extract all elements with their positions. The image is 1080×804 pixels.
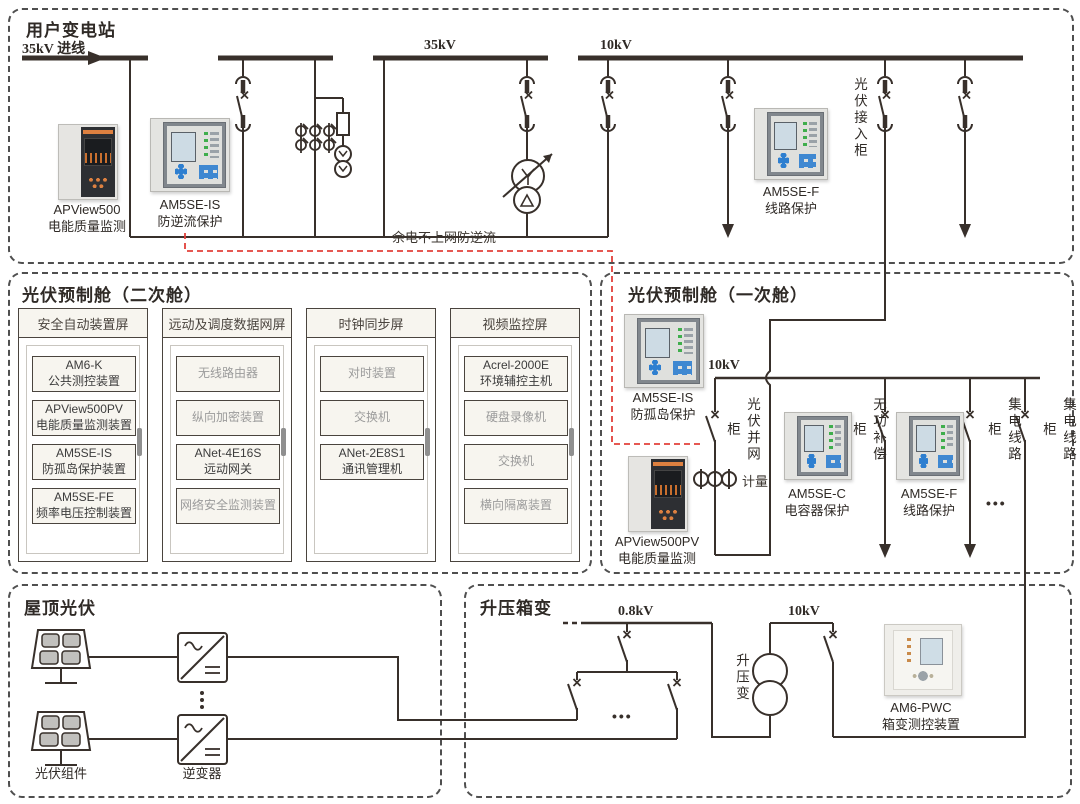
- collector-ellipsis: •••: [986, 495, 1007, 511]
- boost-transformer-label: 升压变: [731, 650, 751, 706]
- bus-35kv-label: 35kV: [424, 38, 456, 54]
- cabinet-device: APView500PV电能质量监测装置: [32, 400, 136, 436]
- apview500-label: APView500电能质量监测: [27, 202, 147, 236]
- cabinet-telecontrol-network: 远动及调度数据网屏 无线路由器 纵向加密装置 ANet-4E16S远动网关 网络…: [162, 308, 292, 562]
- cabinet-device: 纵向加密装置: [176, 400, 280, 436]
- pv-module-label: 光伏组件: [11, 766, 111, 783]
- cabinet-header: 远动及调度数据网屏: [162, 308, 292, 338]
- am5se-is-device-image: [150, 118, 230, 192]
- inverter-label: 逆变器: [152, 766, 252, 783]
- cabinet-device: ANet-4E16S远动网关: [176, 444, 280, 480]
- cabinet-device: AM5SE-FE频率电压控制装置: [32, 488, 136, 524]
- incoming-line-label: 35kV 进线: [22, 38, 85, 58]
- am5se-c-device-image: [784, 412, 852, 480]
- am5se-is-label: AM5SE-IS防逆流保护: [130, 197, 250, 231]
- am5se-is-island-label: AM5SE-IS防孤岛保护: [603, 390, 723, 424]
- collector-cabinet-1-label: 集电线路柜: [983, 392, 1023, 468]
- cabinet-handle-icon: [137, 428, 142, 456]
- apview500-device-image: [58, 124, 118, 200]
- apview500pv-device-image: [628, 456, 688, 532]
- cabinet-handle-icon: [569, 428, 574, 456]
- reactive-comp-cabinet-label: 无功补偿柜: [848, 392, 888, 468]
- backflow-note: 余电不上网防逆流: [392, 227, 496, 246]
- pv-bus-10kv-label: 10kV: [708, 358, 740, 374]
- rooftop-pv-title: 屋顶光伏: [24, 594, 96, 619]
- secondary-cabin-title: 光伏预制舱（二次舱）: [22, 281, 202, 306]
- bus-08kv-label: 0.8kV: [618, 604, 653, 620]
- am5se-f-line-device-image: [896, 412, 964, 480]
- cabinet-handle-icon: [281, 428, 286, 456]
- am5se-c-label: AM5SE-C电容器保护: [757, 486, 877, 520]
- cabinet-device: 对时装置: [320, 356, 424, 392]
- am5se-f-line-label: AM5SE-F线路保护: [869, 486, 989, 520]
- primary-cabin-title: 光伏预制舱（一次舱）: [628, 281, 808, 306]
- cabinet-video-surveillance: 视频监控屏 Acrel-2000E环境辅控主机 硬盘录像机 交换机 横向隔离装置: [450, 308, 580, 562]
- cabinet-device: 交换机: [464, 444, 568, 480]
- boost-station-title: 升压箱变: [480, 594, 552, 619]
- pv-inlet-cabinet-label: 光伏接入柜: [849, 72, 869, 164]
- am5se-is-island-device-image: [624, 314, 704, 388]
- zone-boost-station: [464, 584, 1072, 798]
- cabinet-device: 无线路由器: [176, 356, 280, 392]
- cabinet-clock-sync: 时钟同步屏 对时装置 交换机 ANet-2E8S1通讯管理机: [306, 308, 436, 562]
- apview500pv-label: APView500PV电能质量监测: [597, 534, 717, 568]
- device-front-panel: [81, 127, 115, 197]
- am6-pwc-label: AM6-PWC箱变测控装置: [861, 700, 981, 734]
- cabinet-device: AM6-K公共测控装置: [32, 356, 136, 392]
- cabinet-safety-automation: 安全自动装置屏 AM6-K公共测控装置 APView500PV电能质量监测装置 …: [18, 308, 148, 562]
- cabinet-device: 网络安全监测装置: [176, 488, 280, 524]
- cabinet-device: 硬盘录像机: [464, 400, 568, 436]
- cabinet-header: 安全自动装置屏: [18, 308, 148, 338]
- grid-tie-cabinet-label: 光伏并网柜: [722, 392, 762, 468]
- single-line-diagram: 用户变电站 光伏预制舱（二次舱） 光伏预制舱（一次舱） 屋顶光伏 升压箱变 35…: [0, 0, 1080, 804]
- cabinet-header: 时钟同步屏: [306, 308, 436, 338]
- cabinet-device: 横向隔离装置: [464, 488, 568, 524]
- cabinet-device: ANet-2E8S1通讯管理机: [320, 444, 424, 480]
- cabinet-device: AM5SE-IS防孤岛保护装置: [32, 444, 136, 480]
- collector-cabinet-2-label: 集电线路柜: [1038, 392, 1078, 468]
- am6-pwc-device-image: [884, 624, 962, 696]
- cabinet-handle-icon: [425, 428, 430, 456]
- boost-10kv-label: 10kV: [788, 604, 820, 620]
- cabinet-device: Acrel-2000E环境辅控主机: [464, 356, 568, 392]
- am5se-f-label: AM5SE-F线路保护: [731, 184, 851, 218]
- lv-branch-ellipsis: •••: [612, 708, 633, 724]
- bus-10kv-label: 10kV: [600, 38, 632, 54]
- cabinet-header: 视频监控屏: [450, 308, 580, 338]
- cabinet-device: 交换机: [320, 400, 424, 436]
- am5se-f-device-image: [754, 108, 828, 180]
